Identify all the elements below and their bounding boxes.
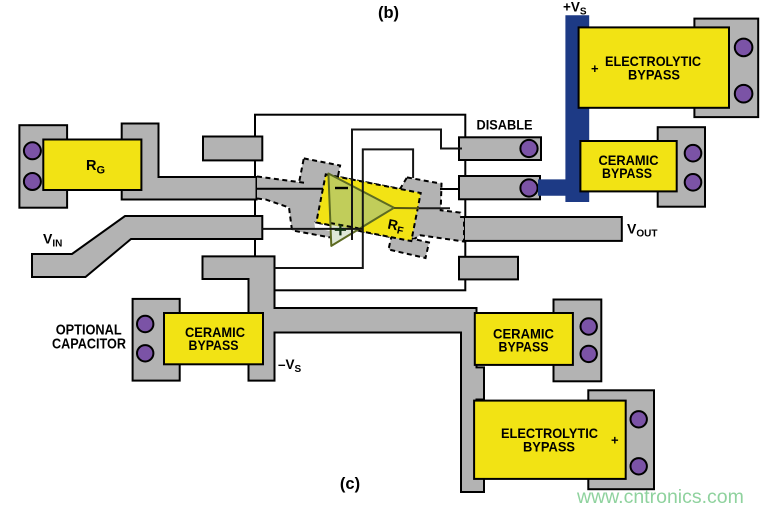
svg-text:DISABLE: DISABLE xyxy=(477,118,533,133)
svg-text:BYPASS: BYPASS xyxy=(189,337,239,353)
svg-text:(c): (c) xyxy=(340,475,360,493)
svg-text:BYPASS: BYPASS xyxy=(523,439,575,455)
svg-text:(b): (b) xyxy=(378,4,399,22)
svg-text:BYPASS: BYPASS xyxy=(602,165,652,181)
svg-text:BYPASS: BYPASS xyxy=(499,339,549,355)
svg-text:+: + xyxy=(611,433,619,448)
svg-text:BYPASS: BYPASS xyxy=(628,67,680,83)
svg-text:CAPACITOR: CAPACITOR xyxy=(52,336,126,353)
svg-text:+: + xyxy=(591,61,599,76)
svg-text:www.cntronics.com: www.cntronics.com xyxy=(576,486,744,508)
